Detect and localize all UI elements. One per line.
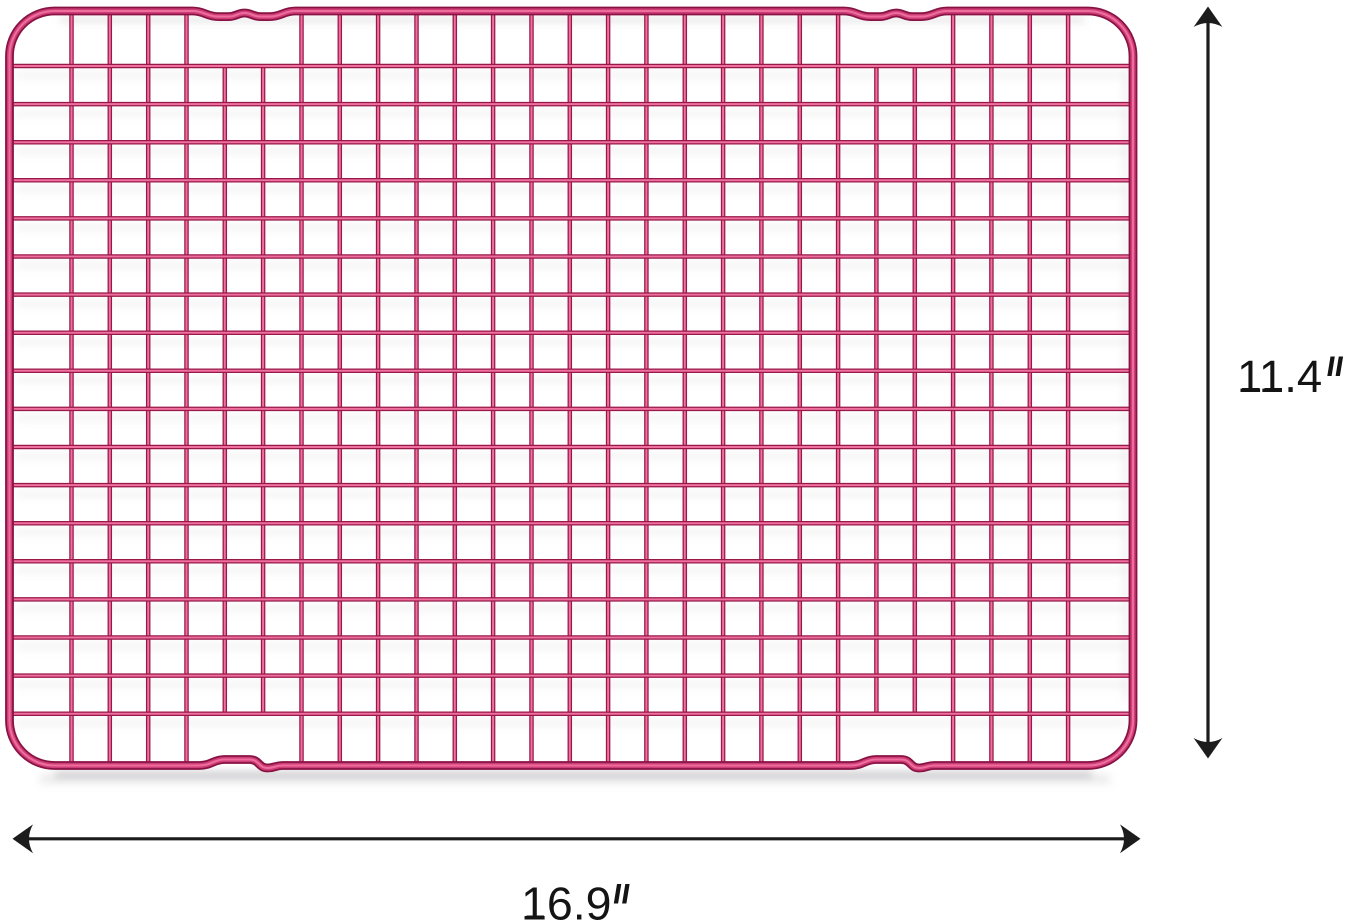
svg-text:16.9: 16.9 [521,878,612,922]
svg-text:11.4: 11.4 [1237,351,1322,402]
